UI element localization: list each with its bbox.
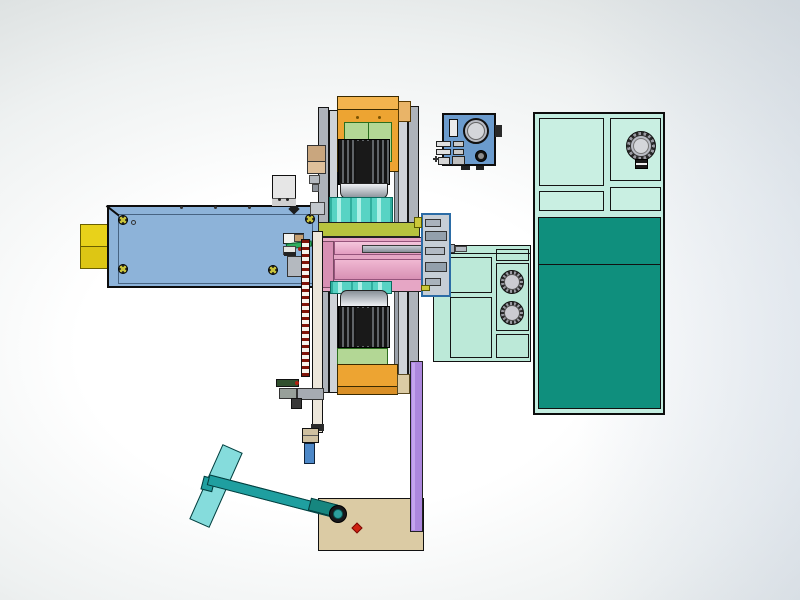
cad-viewport[interactable]	[0, 0, 800, 600]
lever-pivot-center	[333, 509, 343, 519]
base-and-lever	[0, 0, 800, 600]
support-column-highlight	[412, 363, 415, 530]
